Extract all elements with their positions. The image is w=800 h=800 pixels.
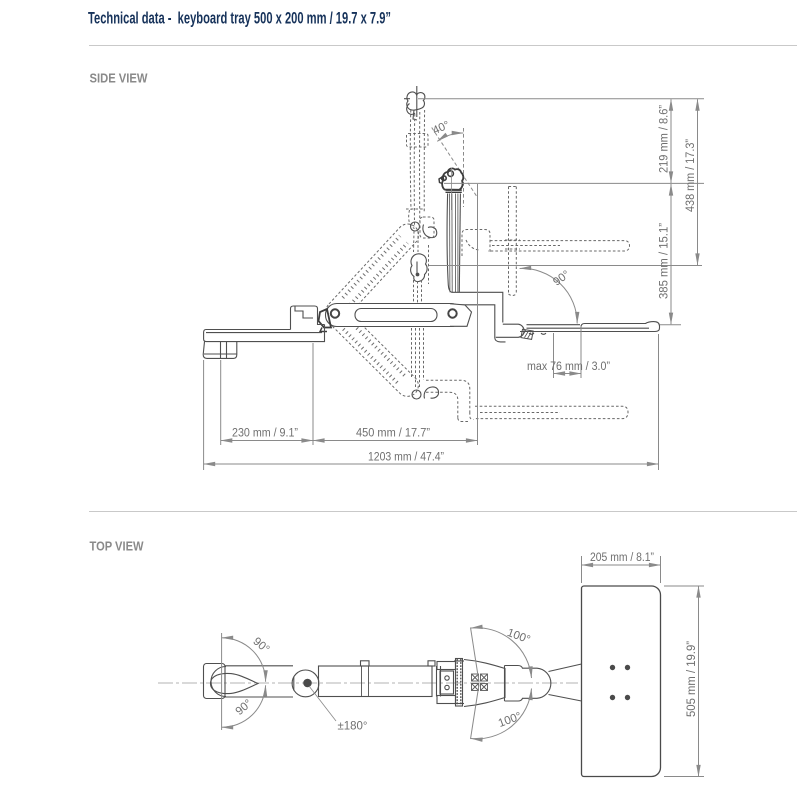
svg-text:±180°: ±180° (338, 721, 368, 733)
svg-text:219 mm / 8.6”: 219 mm / 8.6” (659, 105, 671, 173)
svg-text:205 mm / 8.1”: 205 mm / 8.1” (590, 552, 654, 564)
svg-text:Technical data - keyboard tra: Technical data - keyboard tray 500 x 200… (88, 9, 391, 28)
svg-text:100°: 100° (505, 627, 531, 646)
svg-text:40°: 40° (431, 119, 452, 137)
svg-text:90°: 90° (551, 269, 572, 289)
svg-text:90°: 90° (250, 636, 271, 656)
svg-text:385 mm / 15.1”: 385 mm / 15.1” (659, 223, 671, 299)
svg-text:90°: 90° (234, 698, 255, 718)
svg-text:max 76 mm / 3.0”: max 76 mm / 3.0” (527, 361, 610, 373)
svg-text:230 mm / 9.1”: 230 mm / 9.1” (232, 428, 298, 440)
svg-text:450 mm / 17.7”: 450 mm / 17.7” (356, 428, 430, 440)
svg-text:TOP VIEW: TOP VIEW (90, 539, 145, 554)
svg-text:SIDE VIEW: SIDE VIEW (90, 71, 149, 86)
svg-text:1203 mm / 47.4”: 1203 mm / 47.4” (368, 452, 444, 464)
svg-text:505 mm / 19.9”: 505 mm / 19.9” (686, 641, 698, 717)
svg-text:438 mm / 17.3”: 438 mm / 17.3” (685, 139, 697, 212)
